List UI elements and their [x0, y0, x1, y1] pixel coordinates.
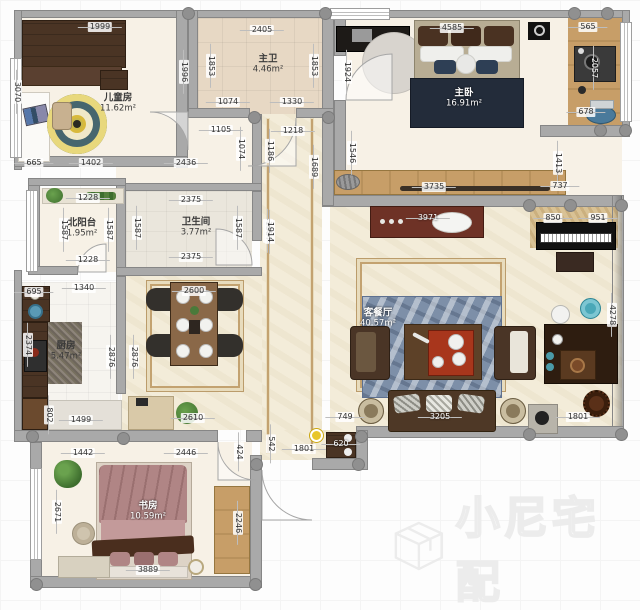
- dimension-label: 1074: [216, 97, 240, 107]
- dimension-label: 1340: [72, 283, 96, 293]
- dimension-label: 3205: [428, 412, 452, 422]
- dimension-label: 2375: [179, 252, 203, 262]
- room-area: 10.59m²: [130, 512, 166, 522]
- room-name: 主卧: [446, 88, 482, 99]
- dimension-label: 1689: [309, 155, 319, 179]
- dimension-label: 678: [576, 107, 595, 117]
- door-arcs: [0, 0, 640, 596]
- column: [564, 199, 577, 212]
- column: [568, 7, 581, 20]
- dimension-label: 749: [335, 412, 354, 422]
- dimension-label: 737: [550, 181, 569, 191]
- room-name: 儿童房: [100, 93, 136, 104]
- dimension-label: 3971: [416, 213, 440, 223]
- dimension-label: 1587: [104, 218, 114, 242]
- dimension-label: 620: [331, 439, 350, 449]
- dimension-label: 2876: [106, 345, 116, 369]
- dimension-label: 1074: [236, 137, 246, 161]
- dimension-label: 2610: [181, 413, 205, 423]
- room-area: 4.46m²: [253, 65, 284, 75]
- room-area: 40.57m²: [360, 319, 396, 329]
- dimension-label: 565: [578, 22, 597, 32]
- dimension-label: 802: [44, 405, 54, 424]
- study-window: [30, 468, 42, 560]
- column: [352, 458, 365, 471]
- column: [523, 428, 536, 441]
- dimension-label: 2405: [250, 25, 274, 35]
- column: [26, 430, 39, 443]
- dimension-label: 3070: [12, 80, 22, 104]
- column: [322, 111, 335, 124]
- dimension-label: 1801: [292, 444, 316, 454]
- dimension-label: 4585: [440, 23, 464, 33]
- balcony-window: [26, 190, 38, 272]
- room-label-bathroom: 卫生间3.77m²: [181, 217, 212, 238]
- column: [355, 430, 368, 443]
- room-area: 1.95m²: [67, 229, 98, 239]
- dimension-label: 1105: [209, 125, 233, 135]
- entry-marker: [310, 429, 323, 442]
- room-label-living-dining: 客餐厅40.57m²: [360, 308, 396, 329]
- dimension-label: 3889: [136, 565, 160, 575]
- dimension-label: 2446: [174, 448, 198, 458]
- room-area: 11.62m²: [100, 104, 136, 114]
- room-label-kitchen: 厨房5.47m²: [51, 341, 82, 362]
- dimension-label: 1587: [132, 216, 142, 240]
- dimension-label: 1914: [265, 220, 275, 244]
- room-area: 16.91m²: [446, 99, 482, 109]
- column: [615, 199, 628, 212]
- dimension-label: 2246: [233, 511, 243, 535]
- dimension-label: 1587: [233, 216, 243, 240]
- column: [594, 124, 607, 137]
- dimension-label: 1186: [265, 139, 275, 163]
- dimension-label: 1924: [342, 60, 352, 84]
- column: [250, 458, 263, 471]
- dimension-label: 2057: [589, 56, 599, 80]
- column: [615, 428, 628, 441]
- column: [249, 578, 262, 591]
- column: [319, 7, 332, 20]
- dimension-label: 1402: [79, 158, 103, 168]
- column: [117, 432, 130, 445]
- dimension-label: 1853: [309, 54, 319, 78]
- room-name: 客餐厅: [360, 308, 396, 319]
- dimension-label: 1546: [347, 141, 357, 165]
- column: [248, 111, 261, 124]
- dimension-label: 1228: [76, 193, 100, 203]
- dimension-label: 665: [24, 158, 43, 168]
- dimension-label: 1442: [71, 448, 95, 458]
- dimension-label: 4278: [607, 303, 617, 327]
- dimension-label: 1853: [206, 54, 216, 78]
- room-name: 北阳台: [67, 218, 98, 229]
- dimension-label: 2876: [129, 345, 139, 369]
- dimension-label: 951: [588, 213, 607, 223]
- room-label-north-balcony: 北阳台1.95m²: [67, 218, 98, 239]
- dimension-label: 2375: [179, 195, 203, 205]
- dimension-label: 1999: [88, 22, 112, 32]
- column: [182, 7, 195, 20]
- dimension-label: 1218: [281, 126, 305, 136]
- dimension-label: 542: [266, 434, 276, 453]
- dimension-label: 1228: [76, 255, 100, 265]
- dimension-label: 424: [234, 442, 244, 461]
- column: [30, 578, 43, 591]
- room-name: 书房: [130, 501, 166, 512]
- dimension-label: 695: [24, 287, 43, 297]
- dimension-label: 1413: [553, 151, 563, 175]
- floor-plan-canvas: 小尼宅配 19992405458556530701996185318531924…: [0, 0, 640, 596]
- room-area: 3.77m²: [181, 228, 212, 238]
- room-label-master-bedroom: 主卧16.91m²: [446, 88, 482, 109]
- dimension-label: 1996: [179, 60, 189, 84]
- dimension-label: 2374: [23, 333, 33, 357]
- room-name: 卫生间: [181, 217, 212, 228]
- room-label-study: 书房10.59m²: [130, 501, 166, 522]
- dimension-label: 2671: [52, 500, 62, 524]
- dimension-label: 1330: [280, 97, 304, 107]
- dimension-label: 3735: [422, 182, 446, 192]
- room-name: 厨房: [51, 341, 82, 352]
- dimension-label: 1499: [69, 415, 93, 425]
- dimension-label: 1801: [566, 412, 590, 422]
- room-label-kids-room: 儿童房11.62m²: [100, 93, 136, 114]
- column: [601, 7, 614, 20]
- vanity-window: [620, 22, 632, 122]
- dimension-label: 2600: [182, 286, 206, 296]
- entry-top-window: [330, 8, 390, 20]
- room-label-master-bath: 主卫4.46m²: [253, 54, 284, 75]
- dimension-label: 850: [543, 213, 562, 223]
- column: [619, 124, 632, 137]
- room-name: 主卫: [253, 54, 284, 65]
- room-area: 5.47m²: [51, 352, 82, 362]
- dimension-label: 2436: [174, 158, 198, 168]
- column: [523, 199, 536, 212]
